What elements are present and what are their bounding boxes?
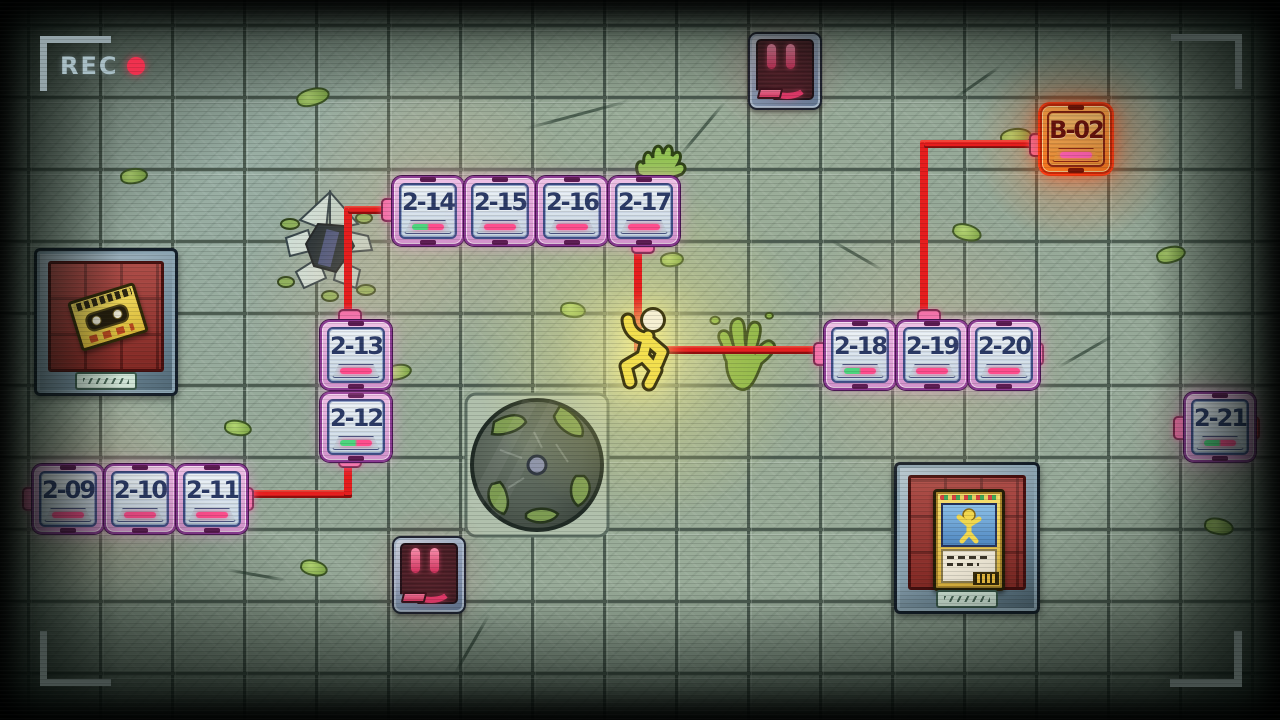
level-node-slot [404, 220, 452, 234]
level-node-face: 2-09 [39, 471, 97, 527]
level-node-2-12[interactable]: 2-12 [320, 392, 392, 462]
level-progress-pill [1060, 152, 1092, 158]
level-node-face: 2-14 [399, 183, 457, 239]
level-node-label: 2-20 [978, 334, 1030, 358]
level-progress-pill [556, 224, 588, 230]
viewfinder-corner-top-right [1171, 34, 1242, 89]
level-node-face: 2-17 [615, 183, 673, 239]
level-node-label: 2-16 [546, 190, 598, 214]
level-node-label: 2-09 [42, 478, 94, 502]
level-progress-pill [844, 368, 876, 374]
level-node-2-20[interactable]: 2-20 [968, 320, 1040, 390]
level-node-label: 2-17 [618, 190, 670, 214]
level-progress-pill [1204, 440, 1236, 446]
level-node-face: 2-19 [903, 327, 961, 383]
level-node-label: 2-14 [402, 190, 454, 214]
level-node-face: 2-16 [543, 183, 601, 239]
level-node-slot [1052, 148, 1100, 162]
level-node-label: 2-12 [330, 406, 382, 430]
level-node-label: 2-10 [114, 478, 166, 502]
level-node-slot [548, 220, 596, 234]
level-node-2-19[interactable]: 2-19 [896, 320, 968, 390]
level-node-slot [908, 364, 956, 378]
level-node-label: 2-19 [906, 334, 958, 358]
level-node-slot [332, 364, 380, 378]
level-progress-pill [340, 368, 372, 374]
level-node-slot [980, 364, 1028, 378]
level-node-label: 2-13 [330, 334, 382, 358]
level-node-face: 2-15 [471, 183, 529, 239]
level-node-slot [116, 508, 164, 522]
level-node-slot [476, 220, 524, 234]
level-progress-pill [412, 224, 444, 230]
level-progress-pill [484, 224, 516, 230]
level-node-face: 2-21 [1191, 399, 1249, 455]
level-node-2-17[interactable]: 2-17 [608, 176, 680, 246]
level-node-B-02[interactable]: B-02 [1040, 104, 1112, 174]
level-node-slot [188, 508, 236, 522]
level-progress-pill [988, 368, 1020, 374]
level-node-face: 2-20 [975, 327, 1033, 383]
level-node-label: 2-15 [474, 190, 526, 214]
level-node-slot [620, 220, 668, 234]
rec-dot-icon [127, 57, 145, 75]
level-node-slot [836, 364, 884, 378]
level-progress-pill [196, 512, 228, 518]
level-node-2-21[interactable]: 2-21 [1184, 392, 1256, 462]
viewfinder-corner-bottom-right [1170, 631, 1242, 687]
level-node-2-11[interactable]: 2-11 [176, 464, 248, 534]
level-node-2-14[interactable]: 2-14 [392, 176, 464, 246]
rec-indicator: REC [60, 54, 145, 78]
level-node-face: 2-11 [183, 471, 241, 527]
viewfinder-corner-bottom-left [40, 631, 111, 686]
level-progress-pill [52, 512, 84, 518]
level-node-2-18[interactable]: 2-18 [824, 320, 896, 390]
level-progress-pill [124, 512, 156, 518]
player-figure [602, 306, 682, 394]
level-progress-pill [340, 440, 372, 446]
level-progress-pill [916, 368, 948, 374]
level-node-2-16[interactable]: 2-16 [536, 176, 608, 246]
level-progress-pill [628, 224, 660, 230]
level-map-screen: 2-092-102-112-122-132-142-152-162-172-18… [0, 0, 1280, 720]
level-node-2-15[interactable]: 2-15 [464, 176, 536, 246]
level-node-label: B-02 [1049, 118, 1103, 142]
level-node-face: B-02 [1047, 111, 1105, 167]
level-node-face: 2-12 [327, 399, 385, 455]
level-node-slot [332, 436, 380, 450]
level-node-2-10[interactable]: 2-10 [104, 464, 176, 534]
level-node-label: 2-18 [834, 334, 886, 358]
level-node-label: 2-21 [1194, 406, 1246, 430]
level-node-face: 2-13 [327, 327, 385, 383]
player-icon [602, 306, 682, 394]
rec-label: REC [60, 54, 119, 78]
level-node-slot [1196, 436, 1244, 450]
level-node-face: 2-10 [111, 471, 169, 527]
level-node-2-09[interactable]: 2-09 [32, 464, 104, 534]
level-node-face: 2-18 [831, 327, 889, 383]
level-node-slot [44, 508, 92, 522]
level-node-label: 2-11 [186, 478, 238, 502]
level-node-2-13[interactable]: 2-13 [320, 320, 392, 390]
